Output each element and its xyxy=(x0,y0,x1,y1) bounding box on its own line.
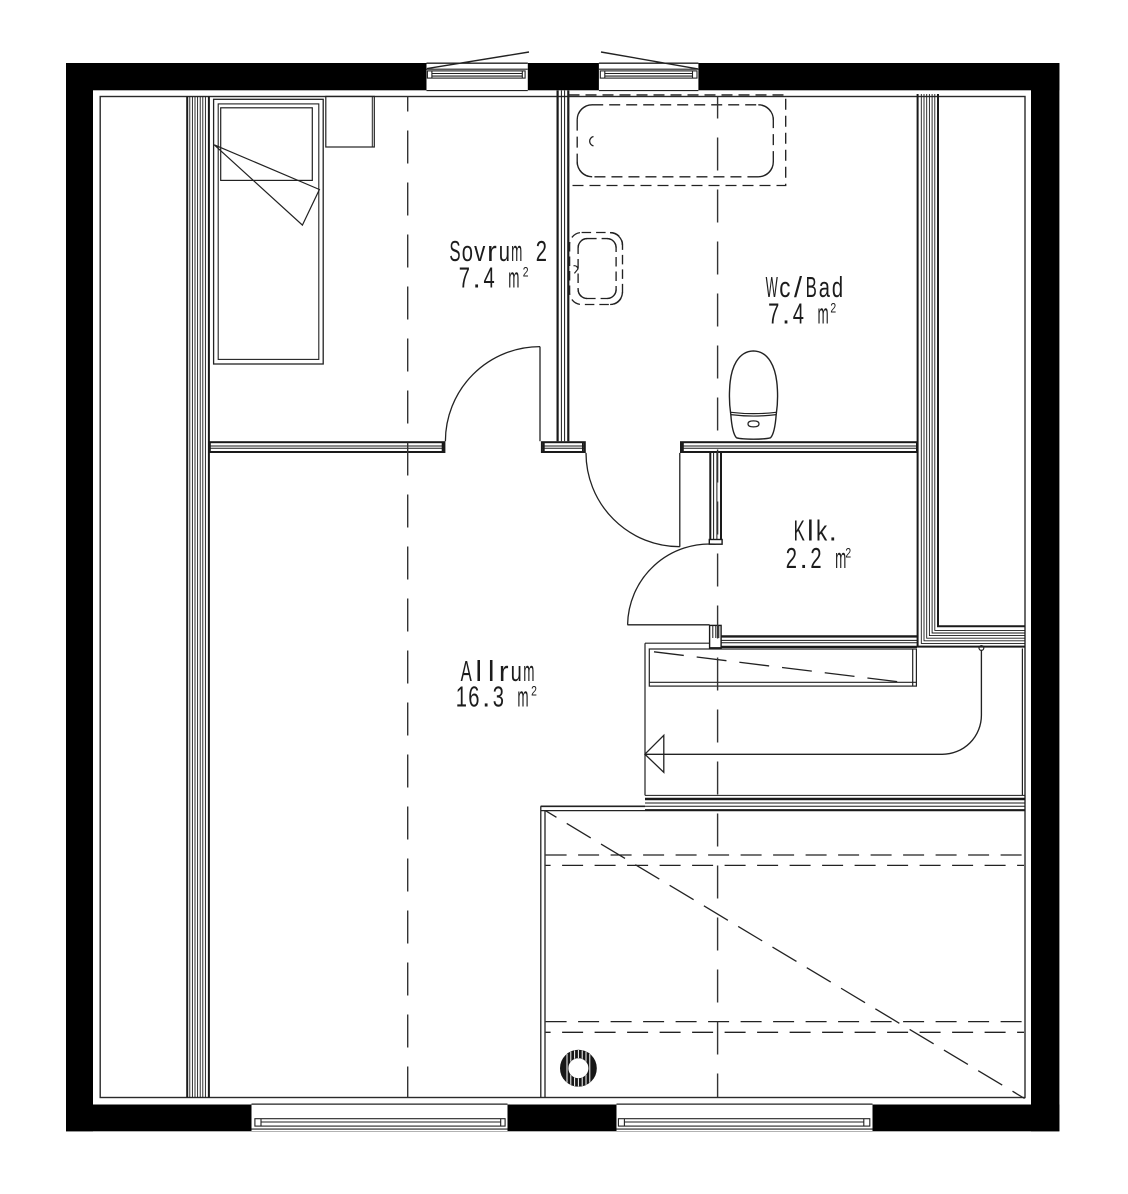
svg-text:6: 6 xyxy=(468,682,479,714)
svg-text:2: 2 xyxy=(786,543,797,575)
svg-text:7: 7 xyxy=(459,262,470,294)
svg-text:.: . xyxy=(473,262,481,294)
svg-text:2: 2 xyxy=(810,543,821,575)
svg-text:.: . xyxy=(782,299,790,331)
svg-text:3: 3 xyxy=(493,682,504,714)
svg-text:m: m xyxy=(508,262,519,294)
svg-text:2: 2 xyxy=(523,265,529,280)
svg-text:.: . xyxy=(800,543,808,575)
svg-text:2: 2 xyxy=(531,684,537,699)
svg-text:m: m xyxy=(517,682,528,714)
svg-text:4: 4 xyxy=(484,262,495,294)
svg-text:.: . xyxy=(482,682,490,714)
svg-text:1: 1 xyxy=(456,682,467,714)
svg-text:m: m xyxy=(818,299,829,331)
svg-text:2: 2 xyxy=(536,236,547,268)
svg-text:2: 2 xyxy=(845,545,851,560)
svg-text:d: d xyxy=(832,272,843,304)
svg-text:7: 7 xyxy=(768,299,779,331)
svg-text:B: B xyxy=(806,272,817,304)
svg-text:2: 2 xyxy=(830,301,836,316)
svg-text:4: 4 xyxy=(793,299,804,331)
